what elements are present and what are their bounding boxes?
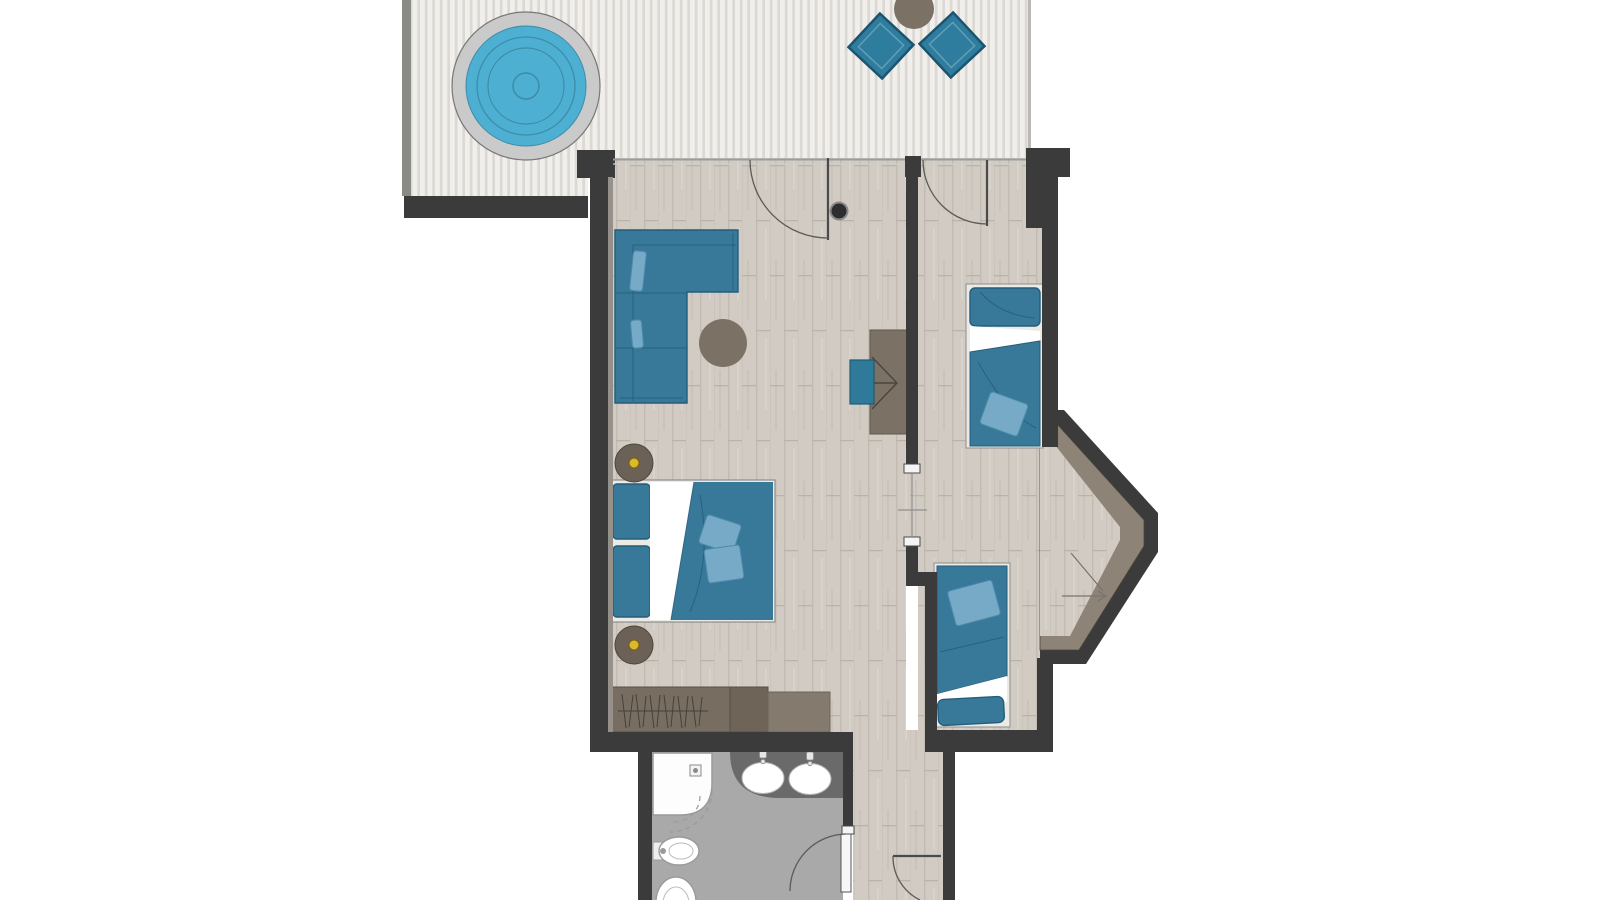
floor-plan-page xyxy=(0,0,1600,900)
washbasin-left xyxy=(742,763,784,794)
divider-pier xyxy=(905,156,921,177)
divider-wall-lower xyxy=(925,586,937,732)
double-bed xyxy=(610,480,775,622)
round-pouf xyxy=(699,319,747,367)
lamp-icon xyxy=(629,458,639,468)
corridor-east-wall xyxy=(943,752,955,900)
faucet-icon xyxy=(760,750,767,764)
single-bed-top xyxy=(966,284,1043,448)
desk xyxy=(870,330,908,434)
east-wall xyxy=(1042,176,1058,447)
bathroom-east-wall xyxy=(843,752,853,828)
desk-chair xyxy=(850,360,874,404)
terrace-bottom-wall xyxy=(404,196,588,218)
wardrobe xyxy=(612,687,830,732)
passage-cap-top xyxy=(904,464,920,473)
floor-socket-dot xyxy=(831,203,848,220)
corner-block-ne xyxy=(1026,148,1070,177)
single-bed-bottom xyxy=(934,563,1010,727)
west-wall-inner-face xyxy=(608,177,613,732)
divider-wall-jog xyxy=(906,572,937,586)
hot-tub xyxy=(452,12,600,160)
bay-bottom-connector xyxy=(1037,658,1053,732)
floor-plan-canvas xyxy=(0,0,1600,900)
nightstand-top xyxy=(615,444,653,482)
bathroom-door-cap xyxy=(842,826,854,834)
corner-block-nw xyxy=(577,150,615,178)
divider-wall-upper xyxy=(906,176,918,465)
passage-cap-bottom xyxy=(904,537,920,546)
terrace-edge-line xyxy=(1028,0,1031,157)
bottom-wall-southeast xyxy=(925,730,1053,752)
bay-window xyxy=(1040,410,1158,664)
corridor-opening-floor xyxy=(853,730,925,752)
washbasin-right xyxy=(789,764,831,795)
divider-wall-mid xyxy=(906,546,918,574)
lamp-icon xyxy=(629,640,639,650)
bathroom-west-wall xyxy=(638,752,652,900)
living-bottom-wall xyxy=(590,732,853,752)
faucet-icon xyxy=(807,752,814,766)
nightstand-bottom xyxy=(615,626,653,664)
terrace-left-wall xyxy=(402,0,411,196)
